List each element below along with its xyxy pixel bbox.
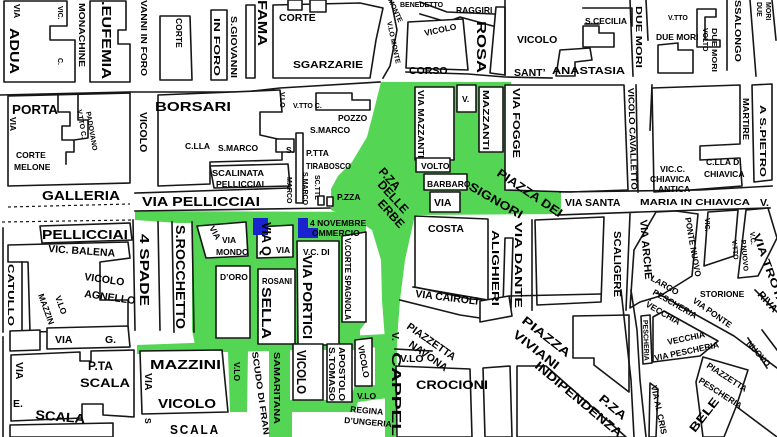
svg-text:VIA: VIA: [8, 117, 18, 131]
svg-text:VIA Q: VIA Q: [259, 222, 274, 256]
svg-text:DUE MORI: DUE MORI: [656, 32, 699, 42]
svg-text:VIA: VIA: [222, 235, 236, 245]
svg-text:MORI: MORI: [764, 2, 771, 20]
svg-text:VIA PELLICCIAI: VIA PELLICCIAI: [142, 194, 260, 209]
svg-text:4 SPADE: 4 SPADE: [137, 234, 152, 306]
svg-text:VIC.: VIC.: [703, 218, 710, 232]
svg-text:STORIONE: STORIONE: [700, 289, 745, 299]
svg-text:OMMERCIO: OMMERCIO: [312, 228, 360, 238]
svg-text:V.LO: V.LO: [357, 391, 376, 401]
svg-text:MAZZINI: MAZZINI: [150, 357, 221, 372]
svg-text:VIA: VIA: [434, 197, 452, 209]
svg-text:VIC.C.: VIC.C.: [660, 164, 685, 174]
svg-text:CORTE: CORTE: [16, 150, 46, 160]
svg-text:V.LO: V.LO: [232, 362, 242, 381]
svg-text:MELONE: MELONE: [14, 162, 51, 172]
svg-text:GALLERIA: GALLERIA: [42, 188, 121, 203]
svg-text:ROSA: ROSA: [474, 21, 489, 74]
svg-text:SANT’: SANT’: [514, 67, 546, 79]
svg-text:FAMA: FAMA: [255, 0, 270, 47]
svg-text:MARTIRE: MARTIRE: [741, 98, 751, 140]
svg-text:PORTA: PORTA: [12, 102, 59, 117]
svg-text:VICOLO: VICOLO: [158, 396, 216, 411]
svg-text:PESCHERIA: PESCHERIA: [641, 320, 649, 361]
svg-text:BENEDETTO: BENEDETTO: [400, 2, 444, 9]
svg-text:E.: E.: [13, 398, 23, 410]
svg-text:.EUFEMIA: .EUFEMIA: [99, 1, 114, 80]
svg-text:4 NOVEMBRE: 4 NOVEMBRE: [310, 218, 367, 228]
svg-text:S.CECILIA: S.CECILIA: [585, 16, 627, 26]
svg-text:BORSARI: BORSARI: [155, 99, 231, 114]
svg-text:VIA FOGGE: VIA FOGGE: [510, 88, 522, 158]
svg-text:MONDO: MONDO: [216, 247, 249, 257]
svg-text:VIA MAZZANTI: VIA MAZZANTI: [416, 90, 426, 158]
svg-text:POZZO: POZZO: [338, 113, 368, 123]
svg-text:VIA: VIA: [13, 362, 25, 380]
svg-text:MARCO: MARCO: [285, 177, 292, 204]
svg-text:ALIGHIERI: ALIGHIERI: [489, 230, 501, 306]
svg-text:S.: S.: [286, 145, 294, 155]
svg-text:VIA: VIA: [142, 373, 154, 391]
svg-text:CORTE: CORTE: [279, 12, 316, 24]
svg-text:VIA: VIA: [12, 4, 22, 18]
svg-text:SCALINATA: SCALINATA: [212, 168, 264, 178]
svg-text:D’ORO: D’ORO: [220, 272, 248, 282]
svg-text:VOLTO: VOLTO: [421, 161, 450, 171]
svg-text:DUE MORI: DUE MORI: [710, 28, 717, 72]
svg-text:SSALONGO: SSALONGO: [733, 0, 743, 62]
svg-text:PELLICCIAI: PELLICCIAI: [42, 227, 128, 242]
svg-text:CHIAVICA: CHIAVICA: [650, 174, 690, 184]
svg-text:C.: C.: [56, 58, 63, 65]
svg-text:DUE: DUE: [755, 2, 762, 17]
svg-text:SAMARITANA: SAMARITANA: [272, 352, 282, 424]
svg-text:TIRABOSCO: TIRABOSCO: [306, 161, 351, 171]
svg-text:APOSTOLO: APOSTOLO: [337, 347, 347, 401]
svg-text:S.MARCO: S.MARCO: [310, 125, 351, 135]
svg-text:RAGGIRI: RAGGIRI: [456, 5, 492, 15]
svg-text:C.LLA D.: C.LLA D.: [706, 157, 742, 167]
svg-text:CHIAVICA: CHIAVICA: [704, 169, 744, 179]
svg-text:COSTA: COSTA: [428, 223, 464, 235]
svg-text:ANTICA: ANTICA: [658, 184, 690, 194]
svg-text:V.TTO: V.TTO: [668, 15, 688, 22]
svg-text:ADUA: ADUA: [7, 28, 22, 75]
svg-text:PELLICCIAI: PELLICCIAI: [216, 179, 264, 189]
svg-text:G.: G.: [105, 334, 116, 346]
svg-text:S.MARCO: S.MARCO: [218, 143, 259, 153]
svg-text:SCALA: SCALA: [80, 376, 130, 390]
svg-text:VIA: VIA: [55, 334, 73, 346]
svg-text:VANNI IN FORO: VANNI IN FORO: [139, 0, 149, 76]
svg-text:CATULLO: CATULLO: [6, 264, 16, 327]
svg-text:VIA PORTICI: VIA PORTICI: [300, 255, 315, 339]
svg-text:P.TTA: P.TTA: [306, 148, 329, 158]
svg-text:S.GIOVANNI: S.GIOVANNI: [229, 16, 239, 78]
svg-text:S.ROCCHETTO: S.ROCCHETTO: [173, 225, 188, 329]
svg-text:MARIA IN CHIAVICA: MARIA IN CHIAVICA: [640, 197, 750, 207]
svg-text:S: S: [143, 418, 153, 424]
svg-text:S.TOMASO: S.TOMASO: [327, 347, 337, 401]
svg-text:V.LO: V.LO: [278, 92, 285, 108]
svg-text:V.TTO C.: V.TTO C.: [293, 103, 322, 110]
svg-text:SCALA: SCALA: [170, 422, 220, 437]
svg-text:C.LLA: C.LLA: [185, 141, 210, 151]
svg-text:V.: V.: [760, 197, 769, 209]
svg-text:A S.PIETRO: A S.PIETRO: [758, 105, 768, 178]
svg-text:V.: V.: [389, 332, 401, 341]
svg-text:S.MARCO: S.MARCO: [301, 172, 308, 206]
svg-text:ROSANI: ROSANI: [262, 276, 292, 286]
svg-text:MONACHINE: MONACHINE: [77, 3, 87, 67]
svg-text:VIA SANTA: VIA SANTA: [565, 197, 621, 209]
svg-text:VOLTO: VOLTO: [701, 28, 708, 52]
svg-text:V.: V.: [462, 94, 469, 104]
svg-text:VICOLO: VICOLO: [137, 112, 149, 152]
svg-text:VIA: VIA: [276, 245, 290, 255]
svg-text:P.TA: P.TA: [88, 359, 113, 373]
svg-text:IN FORO: IN FORO: [212, 18, 222, 77]
svg-text:CORSO: CORSO: [409, 65, 448, 77]
svg-text:ANASTASIA: ANASTASIA: [552, 65, 625, 77]
svg-text:MAZZANTI: MAZZANTI: [481, 90, 491, 150]
svg-text:BARBARO: BARBARO: [427, 179, 471, 189]
svg-text:SGARZARIE: SGARZARIE: [293, 59, 363, 71]
svg-text:CORTE: CORTE: [174, 18, 184, 48]
svg-text:SCALIGERE: SCALIGERE: [611, 231, 623, 297]
svg-text:DUE MORI: DUE MORI: [634, 6, 644, 68]
svg-text:P.ZZA: P.ZZA: [337, 192, 360, 202]
svg-text:VIA DANTE: VIA DANTE: [512, 222, 524, 308]
svg-text:CROCIONI: CROCIONI: [416, 378, 488, 392]
svg-text:VIC.: VIC.: [56, 6, 63, 20]
svg-text:VICOLO: VICOLO: [517, 34, 557, 46]
svg-text:SELLA: SELLA: [259, 287, 274, 340]
svg-text:VICOLO: VICOLO: [294, 350, 309, 394]
svg-text:V.CORTE SPAGNOLA: V.CORTE SPAGNOLA: [343, 238, 353, 320]
